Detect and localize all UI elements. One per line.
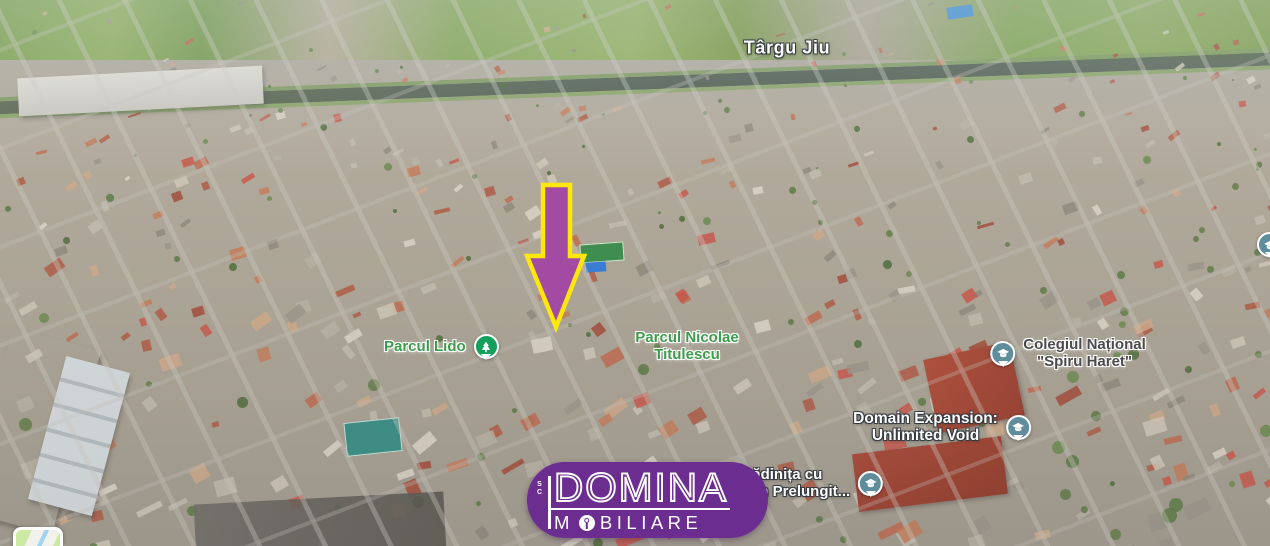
- colegiul-line2: "Spiru Haret": [1023, 353, 1146, 370]
- parcul-titulescu-line1: Parcul Nicolae: [635, 329, 738, 346]
- colegiul-line1: Colegiul Național: [1023, 336, 1146, 353]
- logo-company-prefix: SC: [536, 481, 543, 497]
- parcul-lido-text: Parcul Lido: [384, 338, 466, 355]
- poi-label-parcul-lido[interactable]: Parcul Lido: [384, 334, 499, 359]
- logo-domina-wordmark: DOMINA: [554, 465, 734, 511]
- svg-text:DOMINA: DOMINA: [554, 466, 728, 510]
- asphalt-lot: [194, 491, 447, 546]
- park-tree-icon[interactable]: [474, 334, 499, 359]
- domain-line2: Unlimited Void: [853, 427, 998, 444]
- logo-subtitle-before-o: M: [554, 512, 574, 534]
- aerial-map[interactable]: Târgu Jiu Parcul Lido Parcul Nicolae Tit…: [0, 0, 1270, 546]
- blue-roof-building: [946, 4, 973, 20]
- domina-imobiliare-logo: SC DOMINA M BILIARE: [527, 462, 768, 538]
- location-arrow-marker: [508, 178, 594, 334]
- parcul-titulescu-line2: Titulescu: [635, 346, 738, 363]
- domain-line1: Domain Expansion:: [853, 410, 998, 427]
- graduation-cap-icon-edge[interactable]: [1257, 232, 1270, 257]
- logo-vertical-bar: [548, 476, 551, 529]
- poi-label-parcul-titulescu[interactable]: Parcul Nicolae Titulescu: [635, 329, 738, 363]
- sports-court-teal: [343, 417, 402, 457]
- graduation-cap-icon[interactable]: [858, 471, 883, 496]
- overview-minimap[interactable]: [13, 527, 63, 546]
- poi-label-colegiul-spiru-haret[interactable]: Colegiul Național "Spiru Haret": [990, 336, 1146, 370]
- graduation-cap-icon[interactable]: [1006, 415, 1031, 440]
- logo-imobiliare-row: M BILIARE: [554, 512, 702, 534]
- poi-label-domain-expansion[interactable]: Domain Expansion: Unlimited Void: [853, 410, 1031, 444]
- key-icon: [579, 515, 595, 531]
- farm-fields-strip: [0, 0, 1270, 60]
- city-label-targu-jiu[interactable]: Târgu Jiu: [744, 38, 830, 59]
- graduation-cap-icon[interactable]: [990, 341, 1015, 366]
- logo-underline: [548, 508, 730, 510]
- logo-subtitle-after-o: BILIARE: [600, 512, 702, 534]
